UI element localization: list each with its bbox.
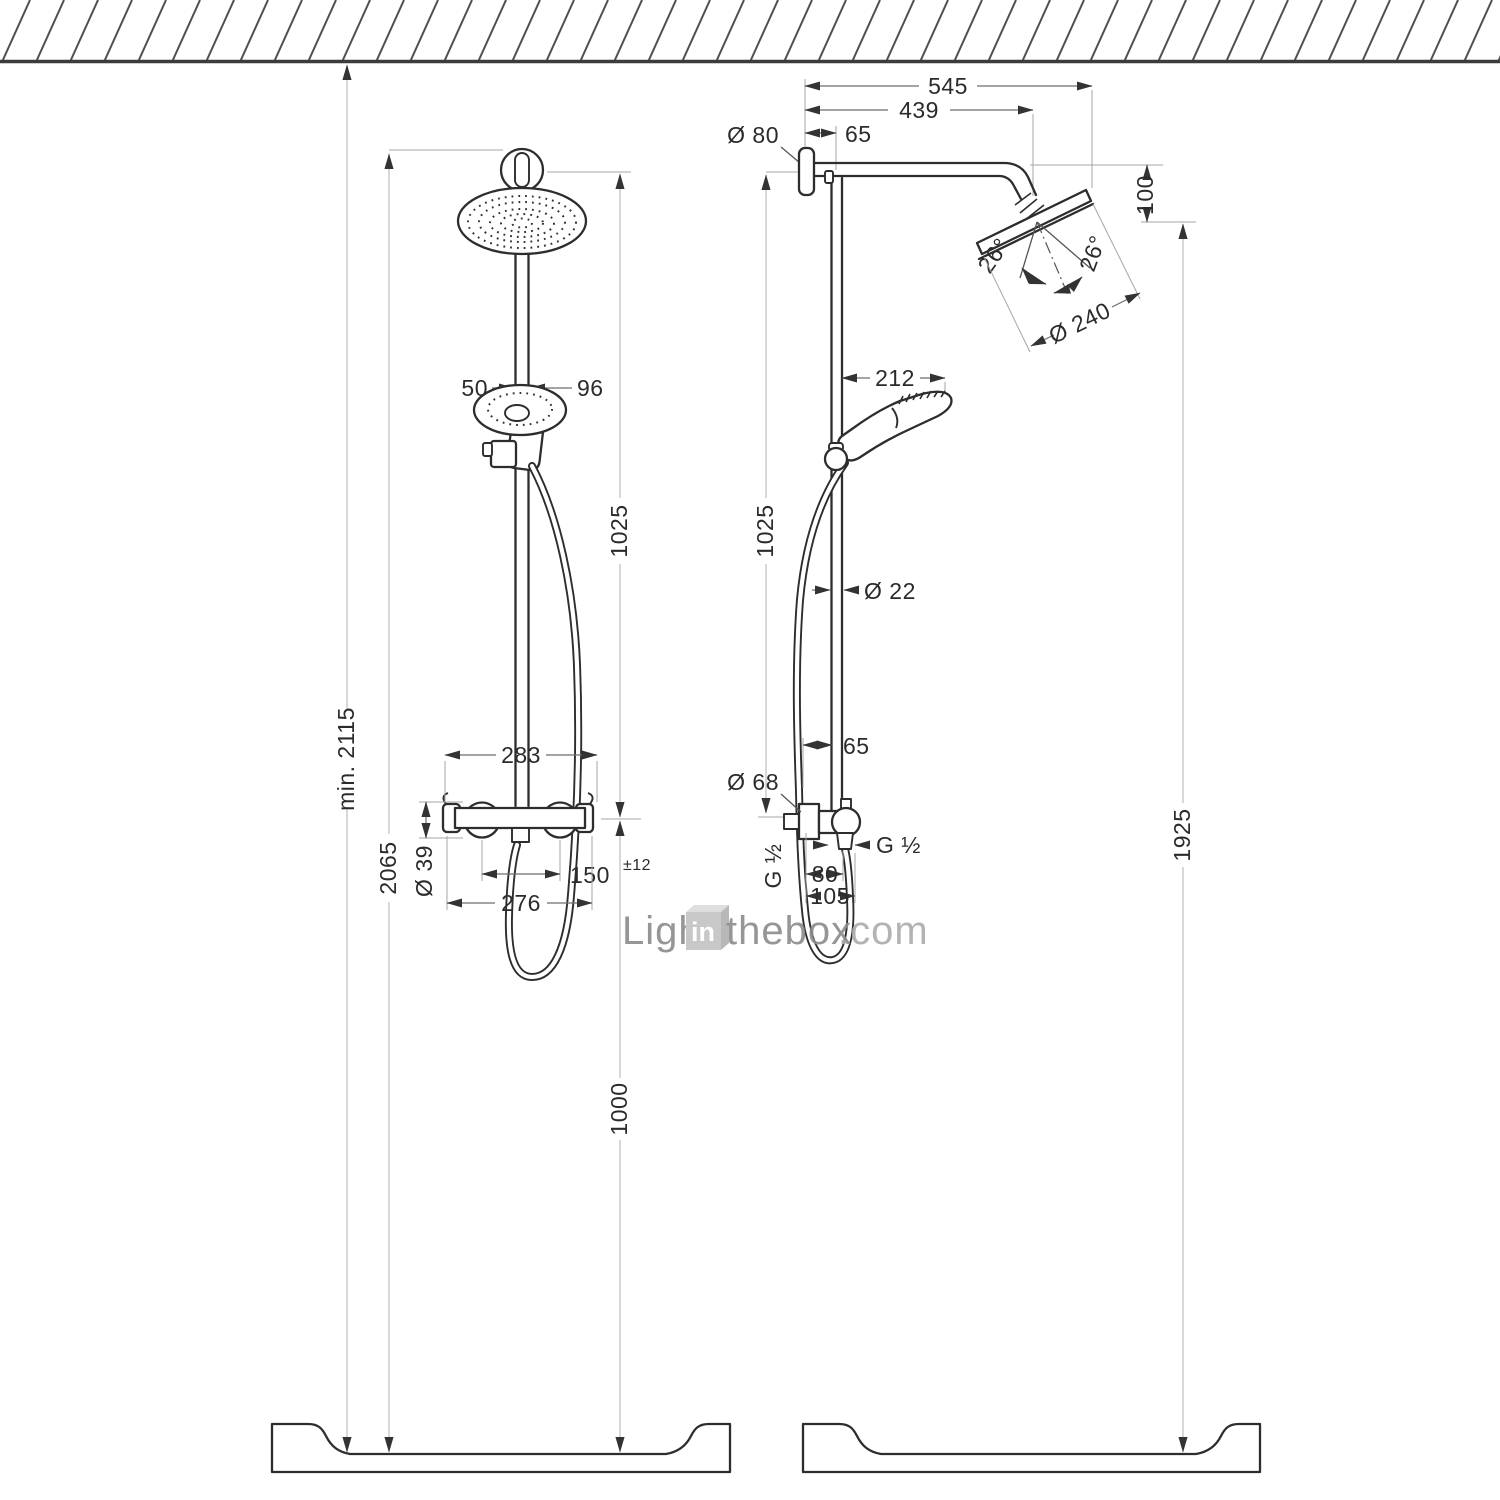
dim-dia68: Ø 68 [727, 769, 801, 812]
dim-dia240: Ø 240 [984, 204, 1140, 352]
dim-dia39-label: Ø 39 [411, 845, 437, 897]
dim-dia80-label: Ø 80 [727, 122, 779, 148]
shower-system-dimension-diagram: min. 2115 2065 1025 1000 [0, 0, 1500, 1500]
hanger-ring [501, 149, 543, 191]
dim-150-tolerance: ±12 [623, 857, 651, 874]
dim-g-half-left: G ½ [760, 844, 786, 889]
shower-tray-right [803, 1424, 1260, 1472]
ceiling-hatch [0, 0, 1500, 62]
wall-plate [799, 148, 814, 195]
dim-150-label: 150 [570, 862, 610, 888]
riser-pipe-front [516, 192, 529, 806]
dim-1025-side-label: 1025 [752, 504, 778, 557]
dim-dia22-label: Ø 22 [864, 578, 916, 604]
dim-283-label: 283 [501, 742, 541, 768]
overhead-shower-front [458, 188, 586, 254]
technical-drawing-canvas: min. 2115 2065 1025 1000 [0, 0, 1500, 1500]
dim-65-top-label: 65 [845, 121, 872, 147]
thermostat-valve-front [443, 793, 593, 842]
dim-2065: 2065 [375, 150, 503, 1452]
dim-dia22: Ø 22 [812, 578, 916, 604]
dim-1025-front-label: 1025 [606, 504, 632, 557]
watermark-com: .com [838, 909, 929, 953]
dim-1925-label: 1925 [1169, 808, 1195, 861]
dim-min-2115: min. 2115 [333, 65, 359, 1452]
dim-276-label: 276 [501, 890, 541, 916]
watermark-thebox: thebox [726, 909, 852, 953]
dim-2065-label: 2065 [375, 841, 401, 894]
dim-g-half-right: G ½ [813, 832, 921, 858]
watermark-in: in [691, 917, 715, 947]
shower-arm [814, 163, 1036, 199]
dim-dia240-label: Ø 240 [1045, 297, 1115, 349]
hand-shower-side [825, 391, 951, 470]
dim-545-label: 545 [928, 73, 968, 99]
g-half-right-label: G ½ [876, 832, 921, 858]
watermark: Light in thebox .com [622, 905, 929, 953]
angle-right-label: 26° [1074, 232, 1111, 275]
dim-439: 439 [805, 97, 1033, 196]
dim-100-label: 100 [1132, 175, 1158, 215]
hand-shower-front [474, 385, 566, 470]
dim-96-label: 96 [577, 375, 604, 401]
shower-tray-left [272, 1424, 730, 1472]
dim-1025-side: 1025 [752, 172, 798, 817]
dim-212-label: 212 [875, 365, 915, 391]
dim-105-label: 105 [810, 883, 850, 909]
dim-65-mid-label: 65 [843, 733, 870, 759]
spray-angle-annotation: 26° 26° [972, 222, 1111, 295]
dim-1000-label: 1000 [606, 1082, 632, 1135]
dim-439-label: 439 [899, 97, 939, 123]
dim-dia80: Ø 80 [727, 122, 800, 163]
dim-65-mid: 65 [803, 733, 870, 788]
dim-min-2115-label: min. 2115 [333, 707, 359, 811]
side-view: 545 439 65 Ø 80 [727, 73, 1196, 1452]
g-half-left-label: G ½ [760, 844, 786, 889]
dim-1925: 1925 [1169, 224, 1195, 1452]
front-view: min. 2115 2065 1025 1000 [333, 65, 651, 1452]
dim-1025-front: 1025 [547, 172, 632, 817]
dim-dia68-label: Ø 68 [727, 769, 779, 795]
